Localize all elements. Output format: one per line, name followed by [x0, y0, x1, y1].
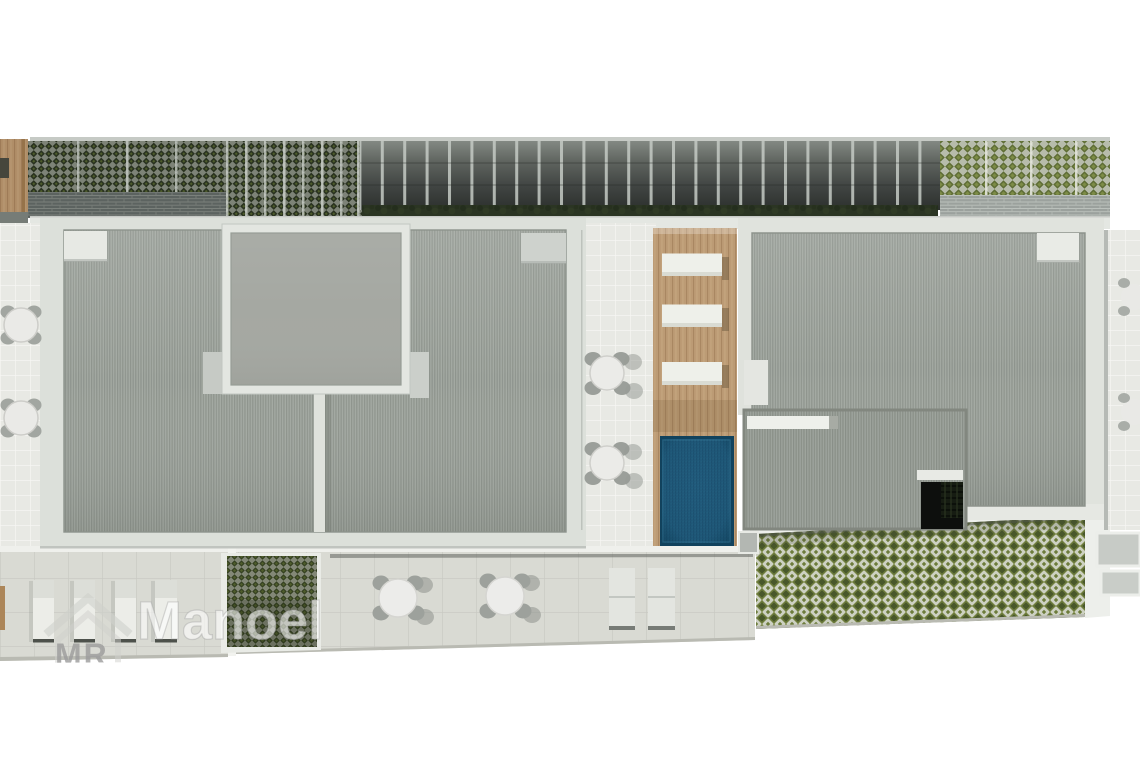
- svg-text:Manoel: Manoel: [137, 591, 323, 651]
